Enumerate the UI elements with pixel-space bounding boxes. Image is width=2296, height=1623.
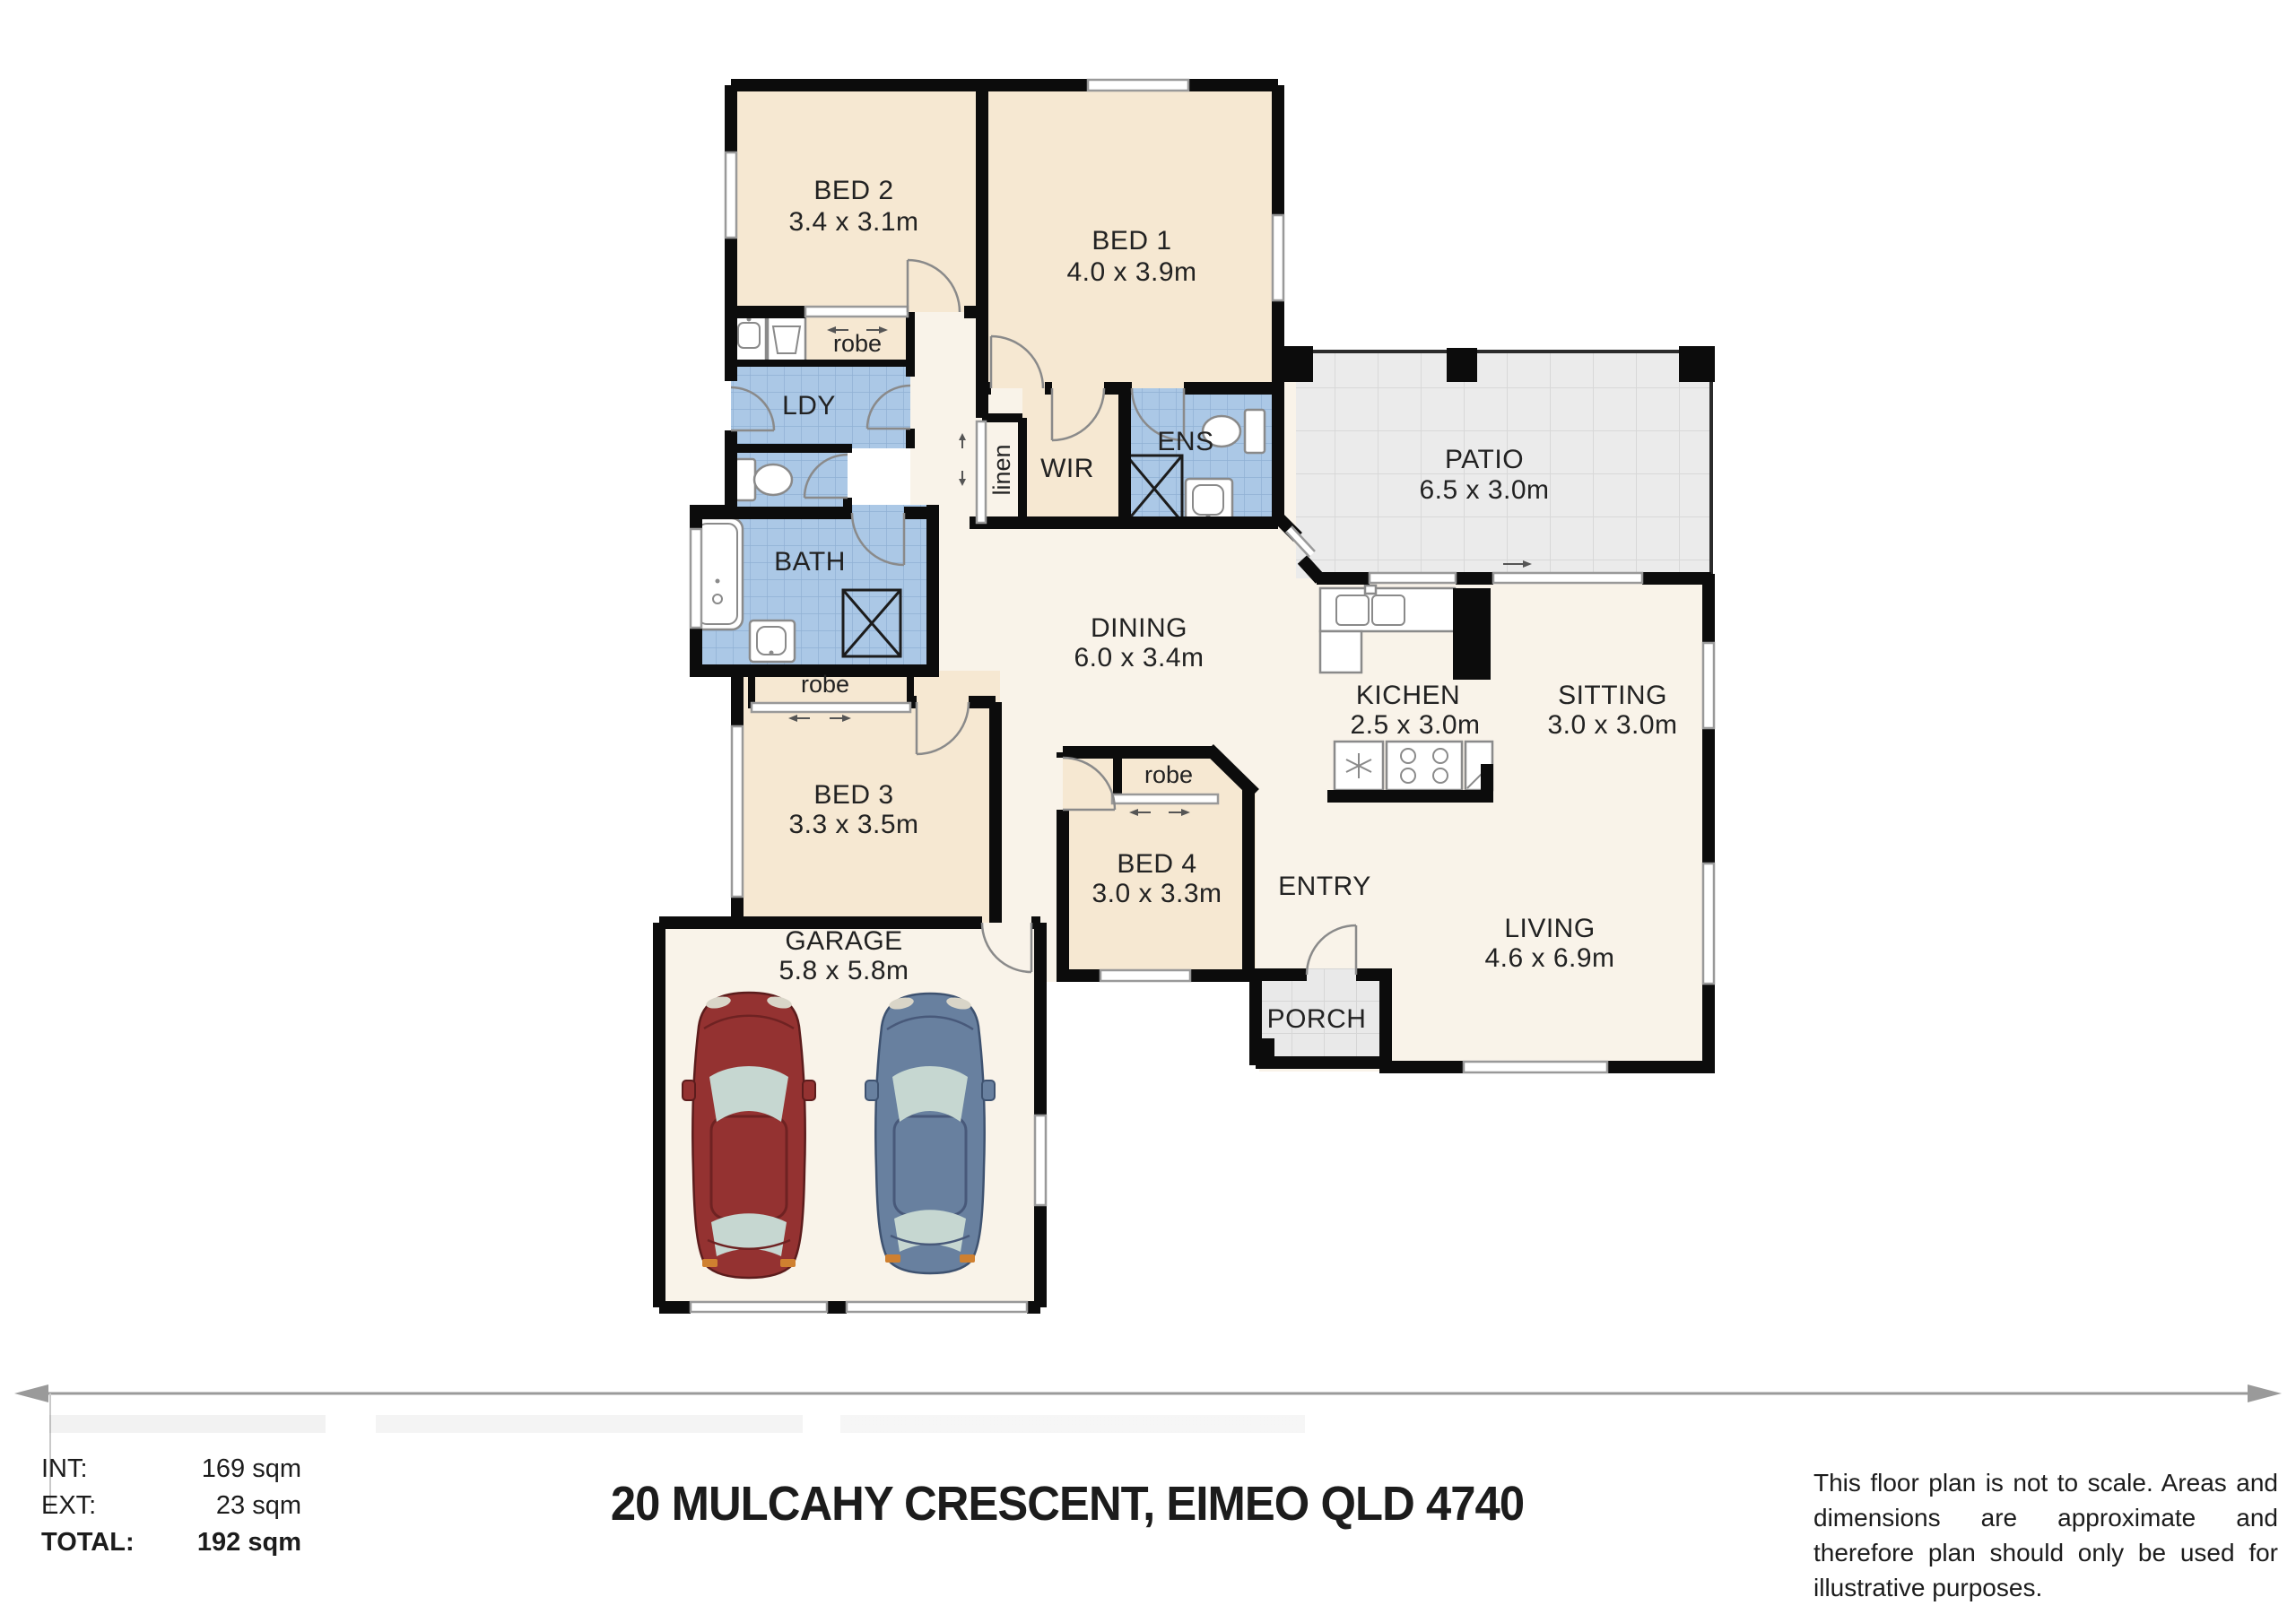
kitchen-window: [1370, 573, 1456, 583]
window: [1703, 643, 1714, 728]
garage-door: [847, 1302, 1027, 1312]
floor-plan-page: BED 2 3.4 x 3.1m BED 1 4.0 x 3.9m robe L…: [0, 0, 2296, 1623]
area-total-value: 192 sqm: [180, 1524, 301, 1561]
window: [1273, 215, 1283, 300]
label-dining: DINING: [1091, 613, 1187, 643]
area-ext-value: 23 sqm: [180, 1488, 301, 1524]
label-garage: GARAGE: [785, 926, 902, 956]
label-robe-bed2: robe: [833, 330, 882, 357]
label-kitchen-dims: 2.5 x 3.0m: [1350, 710, 1480, 740]
floor-plan-drawing: BED 2 3.4 x 3.1m BED 1 4.0 x 3.9m robe L…: [0, 0, 2296, 1381]
laundry-trough-icon: [768, 316, 805, 362]
label-ensuite: ENS: [1157, 427, 1213, 456]
window: [1088, 80, 1188, 91]
window: [726, 152, 736, 238]
bath-vanity-icon: [750, 621, 795, 662]
area-ext: EXT: 23 sqm: [41, 1488, 301, 1524]
fridge-icon: [1335, 742, 1383, 790]
label-sitting-dims: 3.0 x 3.0m: [1547, 710, 1677, 740]
ensuite-vanity-icon: [1186, 479, 1232, 522]
label-wir: WIR: [1040, 454, 1094, 483]
kitchen-sink-icon: [1320, 586, 1455, 631]
garage-door: [691, 1302, 827, 1312]
label-robe-bed4: robe: [1144, 761, 1193, 788]
window: [1035, 1115, 1046, 1205]
robe-slider: [1112, 794, 1218, 803]
label-living: LIVING: [1504, 914, 1595, 943]
disclaimer-text: This floor plan is not to scale. Areas a…: [1813, 1465, 2278, 1605]
label-bed3-dims: 3.3 x 3.5m: [788, 810, 918, 839]
kitchen-bench: [1320, 631, 1361, 673]
label-bath: BATH: [774, 547, 846, 577]
page-title: 20 MULCAHY CRESCENT, EIMEO QLD 4740: [570, 1476, 1564, 1532]
kitchen-pantry-wall: [1453, 588, 1491, 680]
blue-car-icon: [865, 994, 995, 1273]
label-bed1-dims: 4.0 x 3.9m: [1066, 257, 1196, 287]
label-kitchen: KICHEN: [1356, 681, 1460, 710]
label-dining-dims: 6.0 x 3.4m: [1074, 643, 1204, 673]
label-entry: ENTRY: [1278, 872, 1371, 901]
label-patio-dims: 6.5 x 3.0m: [1419, 475, 1549, 505]
label-bed1: BED 1: [1091, 226, 1171, 256]
area-summary: INT: 169 sqm EXT: 23 sqm TOTAL: 192 sqm: [41, 1451, 301, 1561]
label-bed4-dims: 3.0 x 3.3m: [1091, 879, 1222, 908]
label-patio: PATIO: [1445, 445, 1524, 474]
area-total: TOTAL: 192 sqm: [41, 1524, 301, 1561]
patio-sliding-door: [1493, 573, 1642, 583]
label-laundry: LDY: [782, 391, 836, 421]
window: [1464, 1062, 1607, 1072]
label-robe-bed3: robe: [801, 671, 849, 698]
area-int: INT: 169 sqm: [41, 1451, 301, 1488]
label-living-dims: 4.6 x 6.9m: [1484, 943, 1614, 973]
red-car-icon: [683, 993, 815, 1278]
stove-icon: [1387, 742, 1462, 790]
window: [691, 529, 701, 628]
label-bed2: BED 2: [813, 176, 893, 205]
robe-slider: [805, 307, 908, 317]
label-porch: PORCH: [1267, 1004, 1367, 1034]
label-sitting: SITTING: [1558, 681, 1667, 710]
area-int-label: INT:: [41, 1451, 180, 1488]
window: [1100, 970, 1190, 981]
watermark-smudge: [49, 1415, 1305, 1433]
area-ext-label: EXT:: [41, 1488, 180, 1524]
linen-slider: [977, 421, 986, 523]
label-linen: linen: [988, 444, 1015, 495]
window: [732, 726, 743, 897]
label-bed3: BED 3: [813, 780, 893, 810]
label-bed2-dims: 3.4 x 3.1m: [788, 207, 918, 237]
label-bed4: BED 4: [1117, 849, 1196, 879]
area-total-label: TOTAL:: [41, 1524, 180, 1561]
label-garage-dims: 5.8 x 5.8m: [778, 956, 909, 985]
area-int-value: 169 sqm: [180, 1451, 301, 1488]
robe-slider: [752, 703, 910, 712]
window: [1703, 864, 1714, 984]
